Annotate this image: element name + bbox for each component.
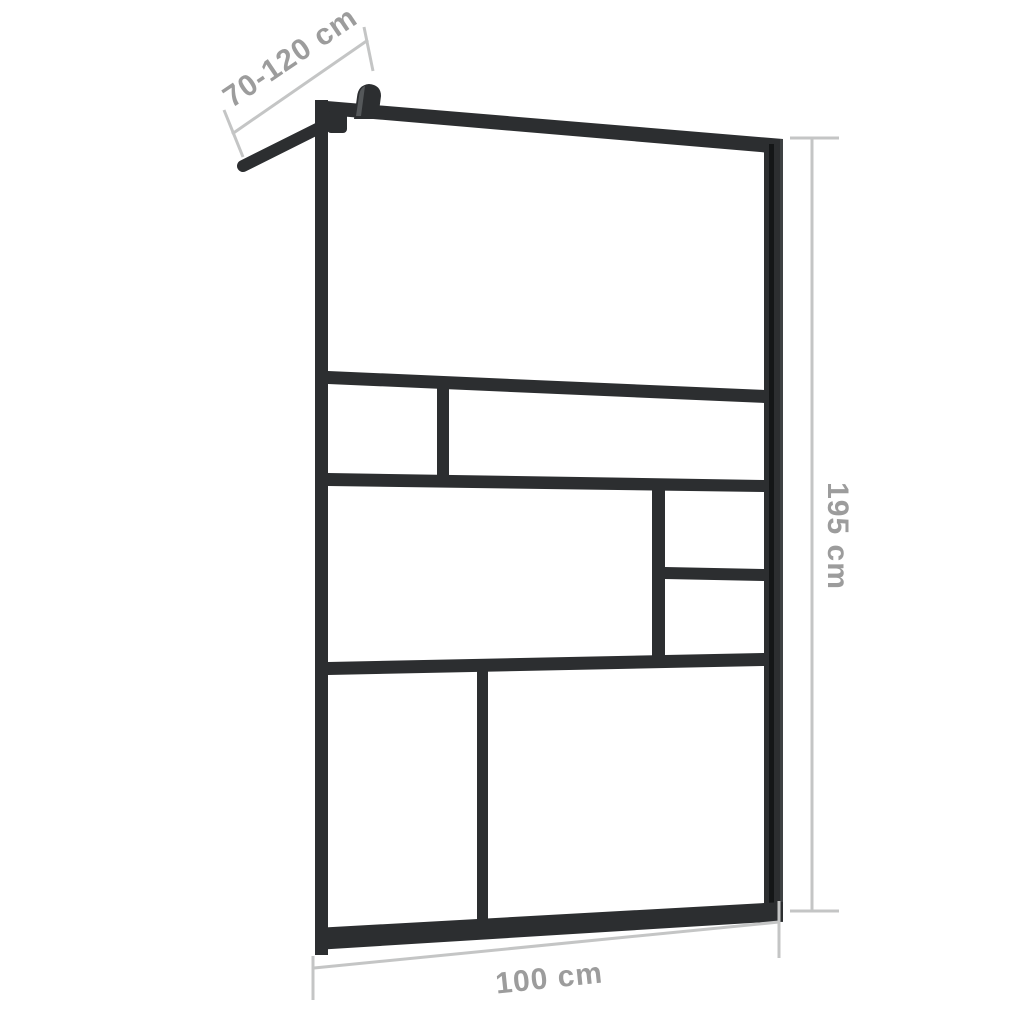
mullion-horizontal-1 (328, 371, 765, 403)
product-dimension-diagram: 70-120 cm 195 cm 100 cm (0, 0, 1024, 1024)
mullion-vertical-3 (477, 670, 488, 922)
glass-frame-group (315, 84, 783, 955)
mullion-horizontal-3 (328, 653, 765, 675)
mullion-horizontal-2 (328, 473, 765, 492)
arm-extension-line-upper (364, 27, 373, 71)
wall-profile-highlight (780, 139, 783, 922)
mullion-vertical-1 (437, 382, 449, 475)
mullion-horizontal-right (665, 567, 765, 581)
height-dimension-label: 195 cm (821, 482, 854, 590)
frame-top-bar (315, 100, 783, 154)
wall-profile-seam (769, 144, 774, 918)
mullion-vertical-2 (652, 486, 665, 658)
frame-left-post (315, 100, 328, 955)
arm-clamp (327, 111, 347, 133)
frame-bottom-rail (315, 902, 783, 950)
width-dimension-label: 100 cm (494, 956, 605, 1000)
arm-extension-line-lower (224, 110, 243, 157)
shower-screen-diagram: 70-120 cm 195 cm 100 cm (0, 0, 1024, 1024)
